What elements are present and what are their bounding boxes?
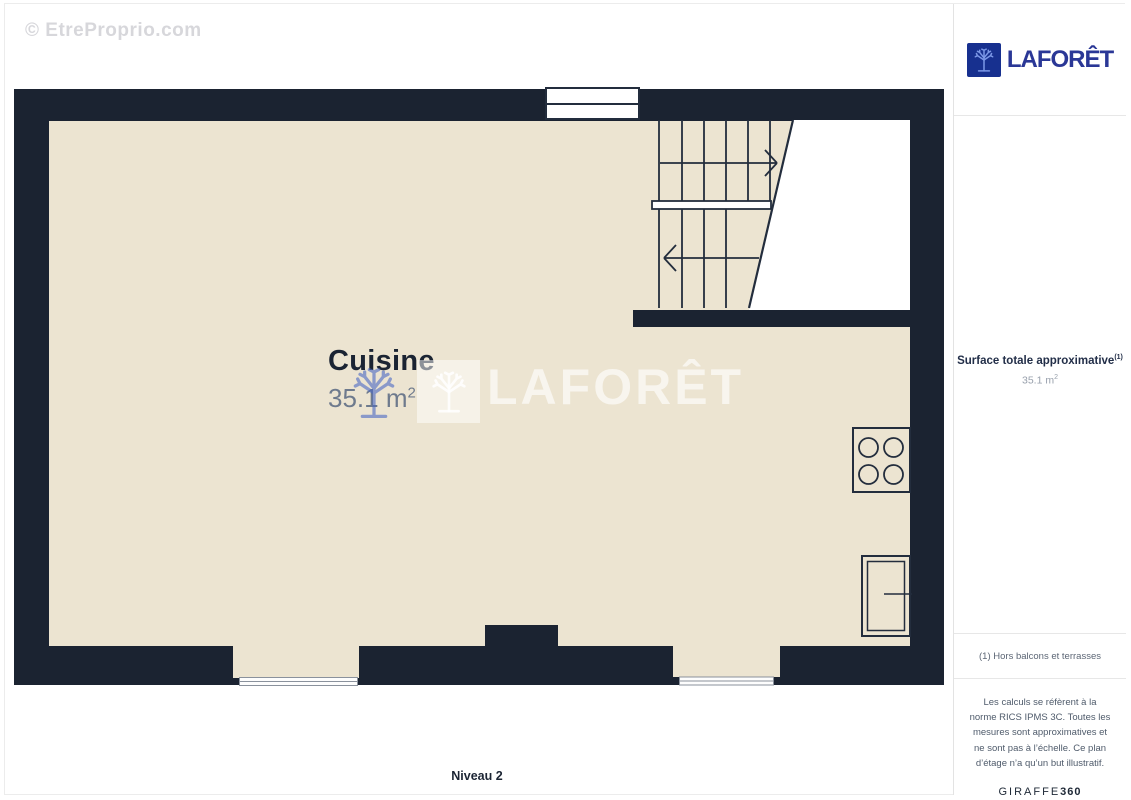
- info-sidebar: LAFORÊT Surface totale approximative(1) …: [953, 4, 1126, 795]
- laforet-watermark-text: LAFORÊT: [487, 358, 744, 416]
- bottom-opening-right: [673, 646, 780, 677]
- level-label: Niveau 2: [4, 769, 950, 783]
- watermark-logo-tile: [417, 360, 480, 423]
- tree-icon: [971, 47, 997, 73]
- surface-value: 35.1 m2: [954, 374, 1126, 387]
- legal-section: Les calculs se réfèrent à la norme RICS …: [954, 679, 1126, 800]
- etreproprio-watermark: © EtreProprio.com: [25, 20, 202, 42]
- giraffe360-brand: GIRAFFE360: [969, 784, 1111, 800]
- surface-footnote-ref: (1): [1114, 354, 1123, 361]
- footnote-text: (1) Hors balcons et terrasses: [979, 651, 1101, 662]
- surface-label-text: Surface totale approximative: [957, 355, 1114, 367]
- laforet-logo-text: LAFORÊT: [1007, 46, 1113, 74]
- floor-plan-page: © EtreProprio.com: [0, 0, 1131, 800]
- window-glazing-line: [547, 103, 638, 105]
- giraffe-text: GIRAFFE: [998, 786, 1060, 798]
- legal-text: Les calculs se réfèrent à la norme RICS …: [969, 695, 1111, 771]
- surface-label: Surface totale approximative(1): [954, 354, 1126, 367]
- giraffe-360: 360: [1060, 786, 1081, 798]
- watermark-tree-icon: [346, 362, 402, 424]
- surface-value-text: 35.1 m: [1022, 374, 1054, 386]
- surface-value-sup: 2: [1054, 374, 1058, 381]
- laforet-logo: LAFORÊT: [954, 4, 1126, 116]
- room-area-sup: 2: [408, 384, 416, 401]
- watermark-tile-tree-icon: [426, 369, 472, 415]
- surface-section: Surface totale approximative(1) 35.1 m2: [954, 116, 1126, 634]
- window-top: [545, 87, 640, 120]
- footnote-section: (1) Hors balcons et terrasses: [954, 634, 1126, 679]
- laforet-logo-square: [967, 43, 1001, 77]
- bottom-opening-left: [233, 646, 359, 678]
- bottom-wall-notch: [485, 625, 558, 649]
